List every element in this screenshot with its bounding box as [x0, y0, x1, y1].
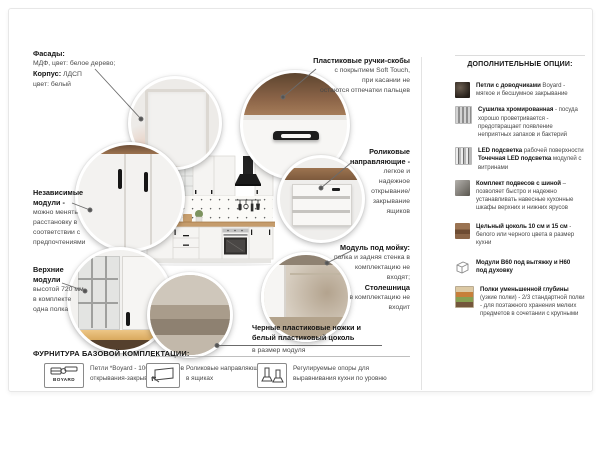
boyard-label: BOYARD — [45, 377, 83, 382]
callout-facade: Фасады: МДФ, цвет: белое дерево; Корпус:… — [33, 49, 115, 90]
adjustable-feet-icon — [257, 363, 287, 388]
module-box-icon — [455, 259, 470, 275]
option-narrow-shelves: Полки уменьшенной глубины (узкие полки) … — [455, 286, 585, 319]
option-hanging-rail: Комплект подвесов с шиной – позволяет бы… — [455, 180, 585, 213]
kitchen-infographic-page: Фасады: МДФ, цвет: белое дерево; Корпус:… — [0, 0, 600, 450]
boyard-hinge-icon: BOYARD — [44, 363, 84, 388]
chrome-dryer-photo — [455, 106, 472, 124]
independent-modules-photo — [75, 142, 185, 252]
hardware-section-header: ФУРНИТУРА БАЗОВОЙ КОМПЛЕКТАЦИИ: — [33, 349, 190, 358]
callout-roller-guides: Роликовые направляющие - легкое и надежн… — [350, 147, 410, 217]
option-hood-oven-modules: Модули В60 под вытяжку и Н60 под духовку — [455, 259, 585, 275]
callout-independent-modules: Независимые модули - можно менять расста… — [33, 188, 85, 248]
option-soft-close-hinges: Петли с доводчиками Boyard - мягкое и бе… — [455, 82, 585, 98]
plinth-legs-photo — [147, 272, 233, 358]
led-light-photo — [455, 147, 472, 165]
callout-handles: Пластиковые ручки-скобы с покрытием Soft… — [313, 56, 410, 96]
hardware-item-feet: Регулируемые опоры для выравнивания кухн… — [293, 364, 387, 383]
hanging-rail-kit-photo — [455, 180, 470, 196]
options-header: ДОПОЛНИТЕЛЬНЫЕ ОПЦИИ: — [455, 55, 585, 68]
solid-plinth-photo — [455, 223, 470, 239]
narrow-shelves-photo — [455, 286, 474, 308]
drawer-slides-icon — [146, 363, 180, 388]
hinge-photo — [455, 82, 470, 98]
callout-plinth: Черные пластиковые ножки и белый пластик… — [252, 323, 361, 356]
korpus-title: Корпус: — [33, 69, 61, 78]
option-solid-plinth: Цельный цоколь 10 см и 15 см - белого ил… — [455, 223, 585, 248]
hardware-item-slides: Роликовые направляющие в ящиках — [186, 364, 266, 383]
additional-options-panel: ДОПОЛНИТЕЛЬНЫЕ ОПЦИИ: Петли с доводчикам… — [455, 55, 585, 318]
callout-sink-module: Модуль под мойку: полка и задняя стенка … — [334, 243, 410, 313]
option-led-light: LED подсветка рабочей поверхности Точечн… — [455, 147, 585, 172]
callout-upper-modules: Верхние модули высотой 720 мм в комплект… — [33, 265, 84, 315]
facade-title: Фасады: — [33, 49, 115, 59]
option-chrome-dryer: Сушилка хромированная - посуда хорошо пр… — [455, 106, 585, 139]
panel-divider — [421, 57, 422, 390]
